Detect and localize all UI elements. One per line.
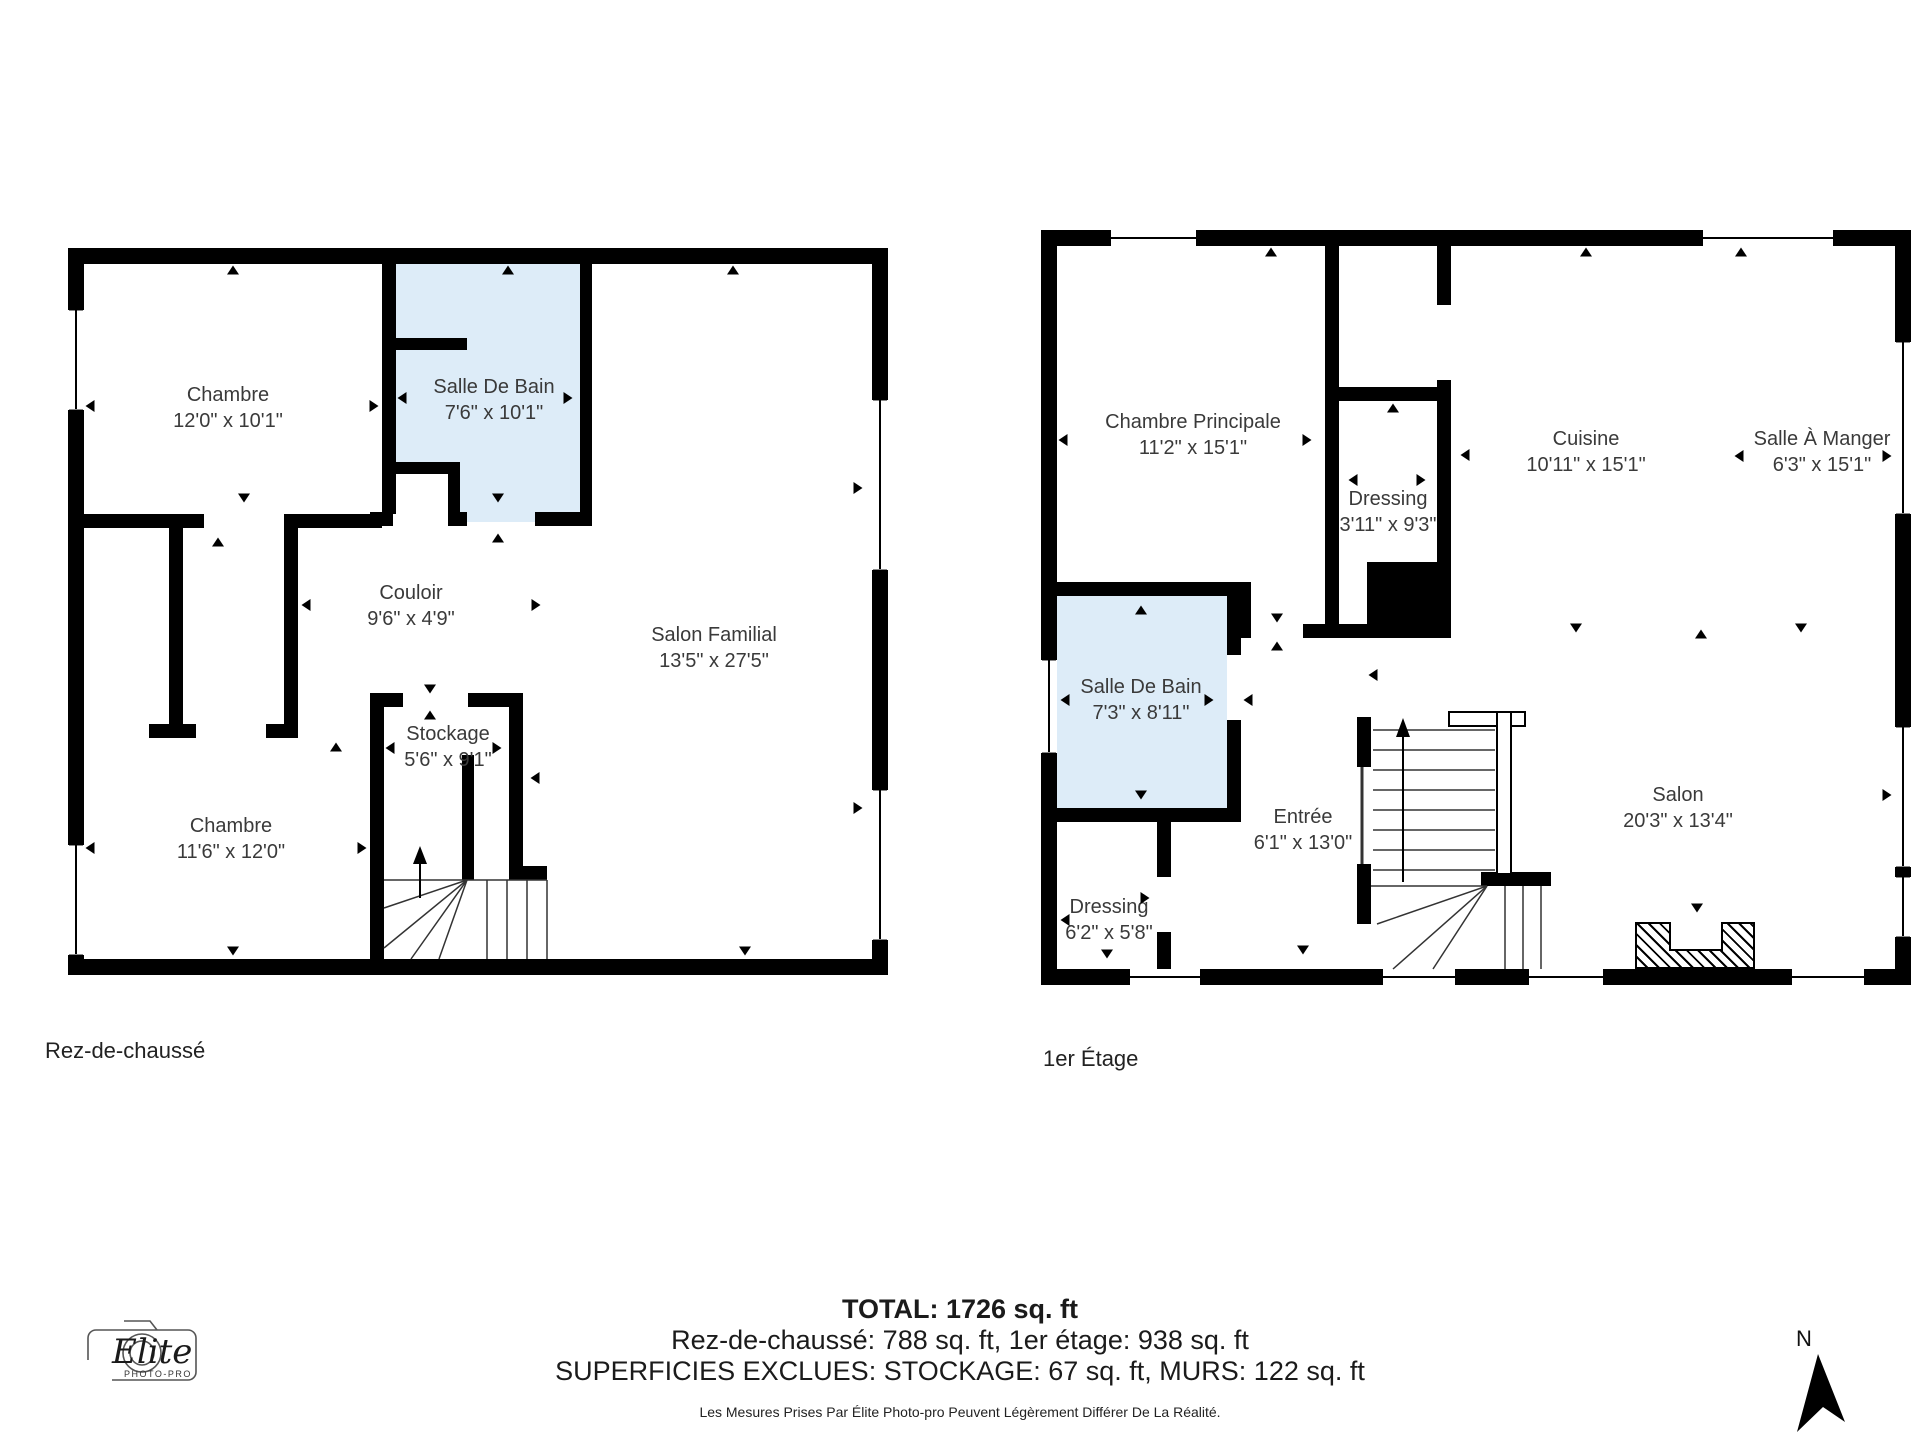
measure-arrow-left-icon: [1461, 449, 1470, 461]
window-pane: [1529, 976, 1603, 978]
window-pane: [1902, 727, 1904, 867]
wall: [68, 248, 888, 264]
window: [68, 308, 84, 412]
room-label-entree: Entrée 6'1" x 13'0": [1254, 804, 1353, 856]
camera-icon: Elite PHOTO-PRO: [72, 1295, 212, 1405]
room-label-chambre-principale: Chambre Principale 11'2" x 15'1": [1105, 409, 1281, 461]
window: [1128, 969, 1202, 985]
measure-arrow-up-icon: [227, 266, 239, 275]
measure-arrow-down-icon: [424, 685, 436, 694]
room-dims: 11'2" x 15'1": [1105, 435, 1281, 461]
wall: [1437, 380, 1451, 638]
measure-arrow-up-icon: [1271, 642, 1283, 651]
north-indicator: N: [1788, 1352, 1868, 1440]
wall: [266, 724, 298, 738]
measure-arrow-left-icon: [1061, 694, 1070, 706]
window-pane: [1902, 877, 1904, 937]
room-label-chambre-1: Chambre 12'0" x 10'1": [173, 382, 283, 434]
room-label-cuisine: Cuisine 10'11" x 15'1": [1526, 426, 1645, 478]
measure-arrow-up-icon: [424, 711, 436, 720]
wall: [1357, 717, 1371, 767]
measure-arrow-left-icon: [302, 599, 311, 611]
elite-photo-pro-logo: Elite PHOTO-PRO: [72, 1295, 212, 1405]
measure-arrow-down-icon: [739, 947, 751, 956]
measure-arrow-up-icon: [492, 534, 504, 543]
floor-areas: Rez-de-chaussé: 788 sq. ft, 1er étage: 9…: [0, 1325, 1920, 1356]
room-dims: 10'11" x 15'1": [1526, 452, 1645, 478]
room-label-salle-de-bain-2: Salle De Bain 7'3" x 8'11": [1080, 674, 1201, 726]
measure-arrow-left-icon: [1735, 450, 1744, 462]
area-summary: TOTAL: 1726 sq. ft Rez-de-chaussé: 788 s…: [0, 1294, 1920, 1420]
room-name: Salle De Bain: [1080, 674, 1201, 700]
wall: [509, 693, 523, 880]
wall: [509, 866, 547, 880]
measure-arrow-up-icon: [727, 266, 739, 275]
wall: [1357, 864, 1371, 924]
wall: [169, 528, 183, 738]
measure-arrow-left-icon: [398, 392, 407, 404]
logo-sub-text: PHOTO-PRO: [124, 1369, 192, 1379]
room-dims: 5'6" x 9'1": [404, 747, 491, 773]
room-label-salon: Salon 20'3" x 13'4": [1623, 782, 1733, 834]
room-label-dressing-1: Dressing 3'11" x 9'3": [1339, 486, 1436, 538]
alcove-fill: [392, 474, 448, 526]
window: [872, 398, 888, 572]
floorplan-page: { "plans": [ { "title": "Rez-de-chaussé"…: [0, 0, 1920, 1440]
wall: [462, 755, 474, 880]
measure-arrow-up-icon: [502, 266, 514, 275]
wall: [1481, 872, 1551, 886]
room-dims: 12'0" x 10'1": [173, 408, 283, 434]
measure-arrow-down-icon: [1101, 950, 1113, 959]
measure-arrow-left-icon: [1349, 474, 1358, 486]
room-dims: 6'2" x 5'8": [1065, 920, 1152, 946]
measure-arrow-right-icon: [532, 599, 541, 611]
room-dims: 7'6" x 10'1": [433, 400, 554, 426]
fireplace-hearth: [1669, 922, 1723, 951]
room-name: Salon: [1623, 782, 1733, 808]
window-pane: [879, 790, 881, 940]
room-name: Stockage: [404, 721, 491, 747]
window: [872, 788, 888, 942]
measure-arrow-down-icon: [1135, 791, 1147, 800]
wall: [1339, 387, 1437, 401]
wall: [370, 693, 403, 707]
window: [1041, 658, 1057, 755]
measure-arrow-up-icon: [1135, 606, 1147, 615]
window: [1701, 230, 1835, 246]
measure-arrow-down-icon: [227, 947, 239, 956]
room-dims: 11'6" x 12'0": [177, 839, 285, 865]
measure-arrow-up-icon: [1735, 248, 1747, 257]
room-dims: 6'3" x 15'1": [1754, 452, 1891, 478]
window: [1109, 230, 1198, 246]
wall: [284, 514, 382, 528]
wall: [1325, 246, 1339, 636]
wall: [448, 512, 467, 526]
room-name: Couloir: [367, 580, 454, 606]
room-label-chambre-2: Chambre 11'6" x 12'0": [177, 813, 285, 865]
measure-arrow-right-icon: [1205, 694, 1214, 706]
window: [1895, 725, 1911, 869]
room-name: Salle À Manger: [1754, 426, 1891, 452]
measure-arrow-left-icon: [1059, 434, 1068, 446]
measure-arrow-right-icon: [358, 842, 367, 854]
room-name: Salon Familial: [651, 622, 777, 648]
window-pane: [1048, 660, 1050, 753]
wall: [149, 724, 196, 738]
wall: [1041, 230, 1057, 985]
north-label: N: [1796, 1326, 1812, 1352]
room-name: Entrée: [1254, 804, 1353, 830]
wall: [1157, 822, 1171, 877]
measure-arrow-left-icon: [86, 842, 95, 854]
wall: [370, 693, 384, 959]
north-arrow-icon: [1788, 1352, 1868, 1440]
measure-arrow-left-icon: [1061, 914, 1070, 926]
floorplan-1er-etage: Chambre Principale 11'2" x 15'1" Dressin…: [1041, 230, 1911, 985]
measure-arrow-left-icon: [531, 772, 540, 784]
wall: [1227, 596, 1241, 655]
measure-arrow-up-icon: [1695, 630, 1707, 639]
room-name: Chambre: [177, 813, 285, 839]
room-name: Salle De Bain: [433, 374, 554, 400]
window: [1790, 969, 1866, 985]
wall: [1367, 562, 1439, 638]
measure-arrow-right-icon: [1417, 474, 1426, 486]
wall: [1057, 808, 1241, 822]
room-label-salle-a-manger: Salle À Manger 6'3" x 15'1": [1754, 426, 1891, 478]
wall: [392, 338, 467, 350]
measure-arrow-left-icon: [86, 400, 95, 412]
measure-arrow-right-icon: [1883, 789, 1892, 801]
window: [1527, 969, 1605, 985]
wall: [1303, 624, 1369, 638]
measure-arrow-right-icon: [854, 482, 863, 494]
wall: [370, 512, 393, 526]
window-pane: [75, 310, 77, 410]
excluded-areas: SUPERFICIES EXCLUES: STOCKAGE: 67 sq. ft…: [0, 1356, 1920, 1387]
measure-arrow-down-icon: [1271, 614, 1283, 623]
window-pane: [1703, 237, 1833, 239]
measure-arrow-right-icon: [1303, 434, 1312, 446]
measure-arrow-up-icon: [1265, 248, 1277, 257]
room-label-stockage: Stockage 5'6" x 9'1": [404, 721, 491, 773]
wall: [84, 514, 204, 528]
measure-arrow-up-icon: [330, 743, 342, 752]
wall: [382, 264, 396, 514]
measure-arrow-left-icon: [386, 742, 395, 754]
room-dims: 3'11" x 9'3": [1339, 512, 1436, 538]
measure-arrow-left-icon: [1244, 694, 1253, 706]
room-dims: 6'1" x 13'0": [1254, 830, 1353, 856]
measure-arrow-right-icon: [493, 742, 502, 754]
wall: [1157, 932, 1171, 969]
room-label-salon-familial: Salon Familial 13'5" x 27'5": [651, 622, 777, 674]
window-pane: [75, 845, 77, 955]
room-name: Cuisine: [1526, 426, 1645, 452]
room-name: Chambre Principale: [1105, 409, 1281, 435]
floorplan-rez-de-chaussee: Chambre 12'0" x 10'1" Salle De Bain 7'6"…: [68, 248, 888, 975]
wall: [535, 512, 590, 526]
floor-title-rez-de-chaussee: Rez-de-chaussé: [45, 1038, 205, 1064]
measure-arrow-down-icon: [492, 494, 504, 503]
wall: [1437, 246, 1451, 305]
window-pane: [1383, 976, 1455, 978]
window: [1381, 969, 1457, 985]
fireplace: [1635, 922, 1755, 969]
room-dims: 13'5" x 27'5": [651, 648, 777, 674]
measure-arrow-down-icon: [1297, 946, 1309, 955]
measure-arrow-up-icon: [1387, 404, 1399, 413]
measure-arrow-down-icon: [1691, 904, 1703, 913]
wall: [1057, 582, 1237, 596]
measure-arrow-right-icon: [854, 802, 863, 814]
room-dims: 9'6" x 4'9": [367, 606, 454, 632]
wall: [468, 693, 509, 707]
floor-title-1er-etage: 1er Étage: [1043, 1046, 1138, 1072]
window-pane: [1792, 976, 1864, 978]
window-pane: [1111, 237, 1196, 239]
window: [1895, 875, 1911, 939]
window-pane: [1902, 342, 1904, 514]
total-area: TOTAL: 1726 sq. ft: [0, 1294, 1920, 1325]
measure-arrow-down-icon: [238, 494, 250, 503]
measure-arrow-right-icon: [370, 400, 379, 412]
wall: [1227, 720, 1241, 822]
wall: [284, 528, 298, 738]
room-label-couloir: Couloir 9'6" x 4'9": [367, 580, 454, 632]
wall: [68, 959, 888, 975]
measure-arrow-up-icon: [212, 538, 224, 547]
measure-arrow-right-icon: [564, 392, 573, 404]
measure-arrow-up-icon: [1580, 248, 1592, 257]
window: [68, 843, 84, 957]
room-name: Chambre: [173, 382, 283, 408]
measure-arrow-down-icon: [1570, 624, 1582, 633]
window-pane: [879, 400, 881, 570]
room-dims: 20'3" x 13'4": [1623, 808, 1733, 834]
measure-arrow-right-icon: [1883, 450, 1892, 462]
room-label-salle-de-bain: Salle De Bain 7'6" x 10'1": [433, 374, 554, 426]
window: [1895, 340, 1911, 516]
measure-arrow-right-icon: [1141, 892, 1150, 904]
room-name: Dressing: [1339, 486, 1436, 512]
room-dims: 7'3" x 8'11": [1080, 700, 1201, 726]
measure-arrow-left-icon: [1369, 669, 1378, 681]
measure-arrow-down-icon: [1795, 624, 1807, 633]
disclaimer: Les Mesures Prises Par Élite Photo-pro P…: [0, 1404, 1920, 1420]
logo-brand-text: Elite: [111, 1332, 192, 1372]
wall: [580, 264, 592, 526]
window-pane: [1130, 976, 1200, 978]
